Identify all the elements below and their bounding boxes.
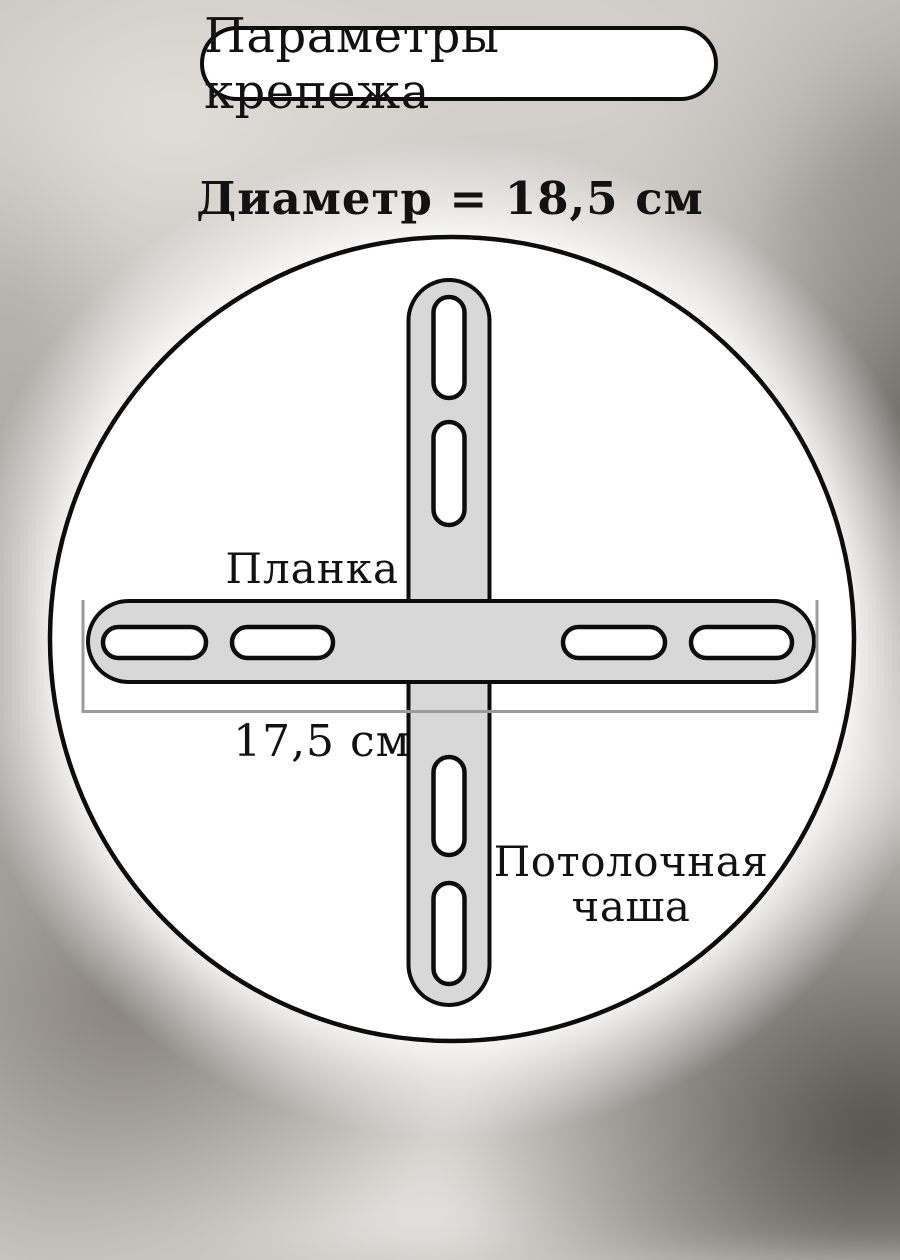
- plank-slot: [563, 627, 665, 658]
- plank-slot: [434, 757, 465, 855]
- plank-slot: [434, 422, 465, 525]
- plank-slot: [691, 627, 792, 658]
- title-text: Параметры крепежа: [204, 8, 714, 120]
- plank-label: Планка: [99, 544, 399, 593]
- ceiling-cup-label: Потолочная чаша: [481, 840, 781, 929]
- plank-slot: [434, 297, 465, 398]
- plank-length-label: 17,5 см: [172, 716, 472, 767]
- diameter-label: Диаметр = 18,5 см: [100, 172, 800, 225]
- plank-slot: [232, 627, 333, 658]
- title-badge: Параметры крепежа: [200, 26, 718, 101]
- plank-slot: [103, 627, 206, 658]
- plank-slot: [434, 883, 465, 984]
